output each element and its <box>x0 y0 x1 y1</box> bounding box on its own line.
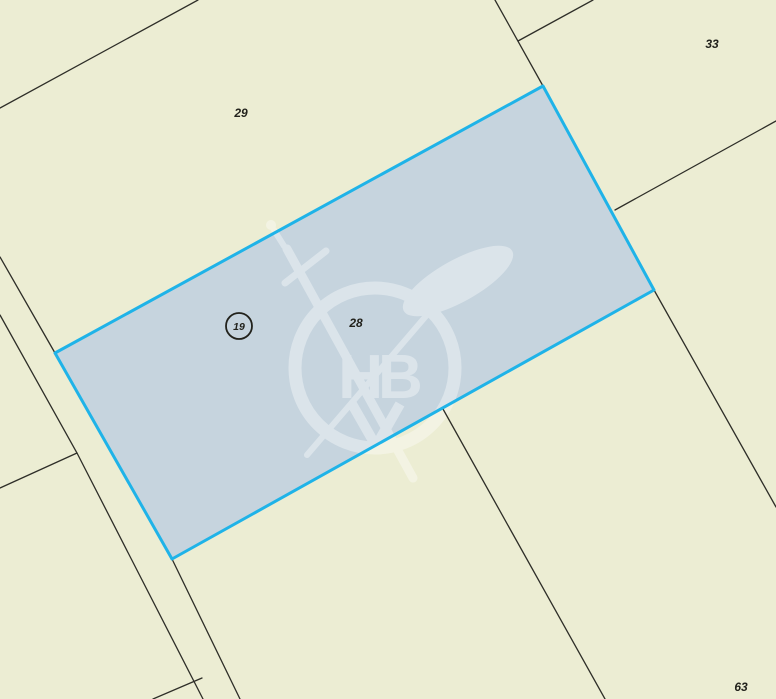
marker-label: 19 <box>233 321 245 333</box>
watermark-monogram: HB <box>338 343 420 412</box>
cadastral-map-canvas[interactable]: HB 29 33 28 63 19 <box>0 0 776 699</box>
parcel-label-28: 28 <box>348 316 363 330</box>
parcel-label-29: 29 <box>233 106 248 120</box>
map-viewport[interactable]: HB 29 33 28 63 19 <box>0 0 776 699</box>
parcel-label-63: 63 <box>734 680 748 694</box>
parcel-label-33: 33 <box>705 37 719 51</box>
